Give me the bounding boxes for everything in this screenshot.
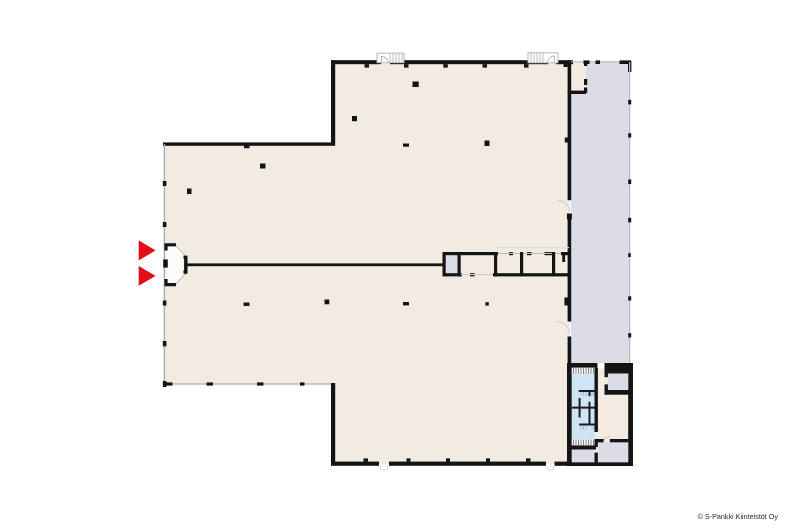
svg-text:© S-Pankki Kiinteistöt Oy: © S-Pankki Kiinteistöt Oy [698,512,779,521]
